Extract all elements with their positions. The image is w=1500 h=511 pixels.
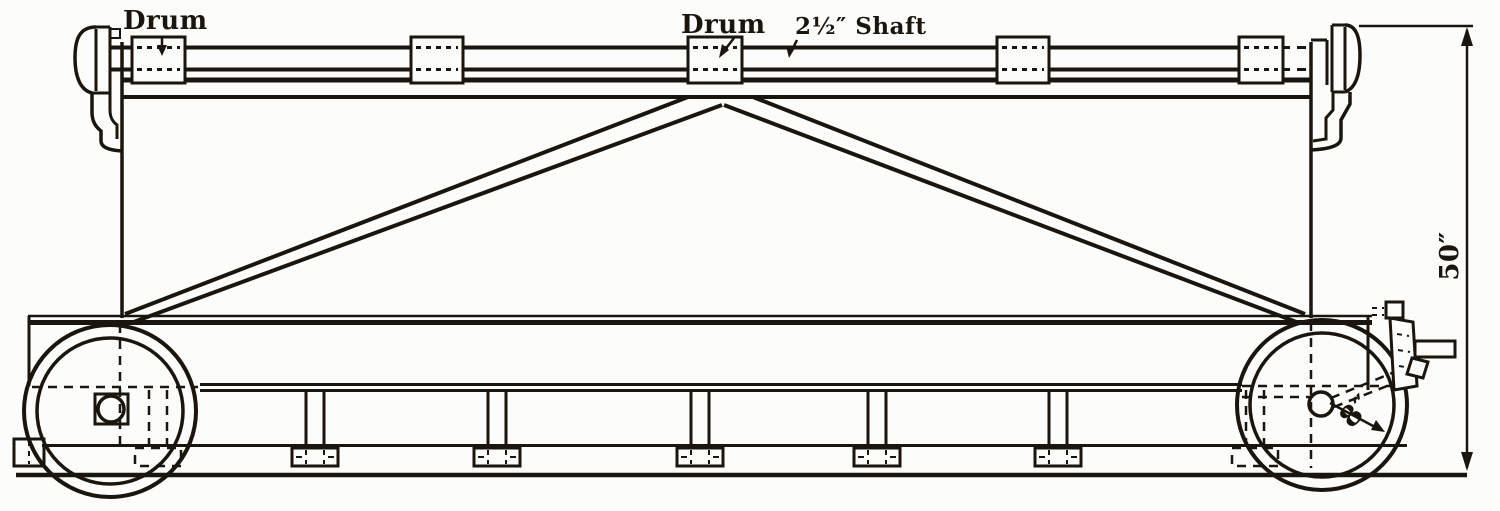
top-shaft-assembly <box>110 37 1311 83</box>
drum <box>1239 37 1283 83</box>
arrowhead <box>1371 420 1385 432</box>
post <box>292 392 338 466</box>
drum <box>132 37 185 83</box>
post <box>474 392 520 466</box>
right-hanger-bracket <box>1311 25 1360 150</box>
drawing-canvas <box>0 0 1500 511</box>
drum-label-left: Drum <box>123 6 208 36</box>
post <box>677 392 723 466</box>
arrowhead <box>786 46 795 58</box>
arrowhead-up <box>1461 27 1473 46</box>
hidden-post <box>135 390 181 466</box>
engineering-drawing: Drum Drum 2½″ Shaft 50″ 8″ <box>0 0 1500 511</box>
drum-label-center: Drum <box>681 10 766 40</box>
support-posts <box>135 390 1278 466</box>
height-dimension-label: 50″ <box>1435 231 1465 280</box>
right-wheel <box>1237 320 1407 490</box>
drum <box>688 37 742 83</box>
post <box>854 392 900 466</box>
truss-braces <box>125 97 1305 323</box>
post <box>1035 392 1081 466</box>
axle-bore <box>1309 392 1333 416</box>
left-wheel <box>24 324 198 497</box>
drum <box>997 37 1049 83</box>
shaft-label: 2½″ Shaft <box>795 13 927 40</box>
handle-bar <box>1415 341 1455 357</box>
arrowhead-down <box>1461 452 1473 471</box>
drum <box>411 37 463 83</box>
